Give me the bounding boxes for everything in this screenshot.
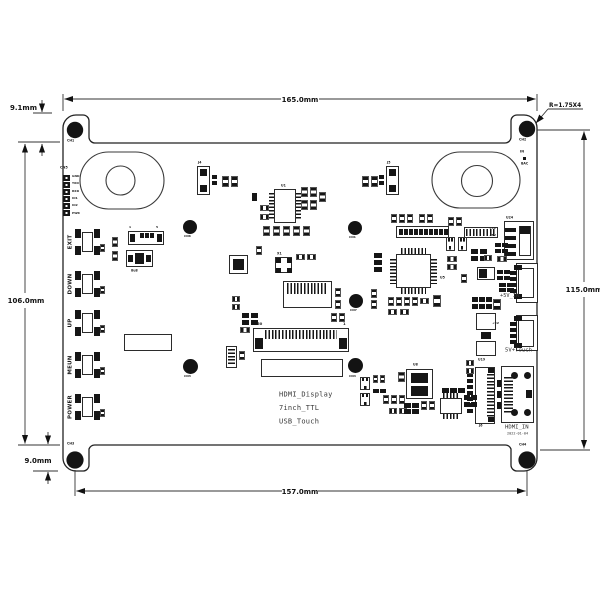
- chip-component: [493, 299, 501, 310]
- smd-pad: [374, 267, 382, 272]
- header-pin-label: RXD: [72, 190, 79, 193]
- chip-component: [307, 254, 316, 260]
- chip-component: [296, 254, 305, 260]
- smd-pad: [471, 249, 478, 254]
- header-pin-label: IO2: [72, 204, 78, 207]
- smd-pad: [146, 255, 151, 262]
- chip-component: [371, 300, 377, 309]
- power-usb-label: +5V_IN: [500, 293, 519, 298]
- chip-component: [100, 409, 105, 417]
- smd-pad: [233, 259, 244, 270]
- smd-pad: [450, 388, 457, 393]
- chip-component: [448, 217, 454, 226]
- smd-pad: [481, 332, 491, 339]
- chip-component: [301, 200, 308, 210]
- smd-pad: [128, 255, 133, 262]
- chip-component: [388, 297, 394, 306]
- smd-pad: [479, 269, 487, 278]
- silkscreen-title: HDMI_Display 7inch_TTL USB_Touch: [279, 388, 333, 429]
- component-outline: [274, 189, 296, 223]
- chip-component: [371, 289, 377, 298]
- smd-pad: [510, 271, 517, 275]
- header-pin-label: TXD: [72, 182, 79, 185]
- chip-component: [427, 214, 433, 223]
- smd-pad: [467, 409, 473, 413]
- ref-label: IN: [520, 150, 524, 153]
- ref-label: U19: [478, 358, 485, 361]
- pin-row: [443, 393, 459, 398]
- via-label: CN7: [350, 309, 357, 312]
- smd-pad: [380, 389, 386, 393]
- smd-pad: [495, 243, 501, 247]
- chip-component: [231, 176, 238, 187]
- chip-component: [260, 214, 269, 220]
- chip-component: [222, 176, 229, 187]
- smd-pad: [200, 169, 207, 176]
- chip-component: [429, 401, 435, 410]
- chip-component: [404, 297, 410, 306]
- chip-component: [399, 214, 405, 223]
- date-code-label: 2022-01-04: [507, 432, 528, 436]
- smd-pad: [276, 268, 281, 273]
- smd-pad: [212, 181, 217, 185]
- header-pin: [63, 196, 70, 202]
- component-outline: [124, 334, 172, 351]
- smd-pad: [510, 322, 517, 326]
- pin-row: [431, 259, 437, 284]
- smd-pad: [200, 185, 207, 192]
- pin-row: [401, 248, 426, 254]
- smd-pad: [497, 276, 503, 280]
- smd-pad: [252, 193, 257, 201]
- smd-pad: [404, 403, 411, 408]
- smd-pad: [150, 233, 154, 238]
- via-hole: [183, 220, 197, 234]
- smd-pad: [404, 229, 408, 235]
- button-label-up: UP: [67, 308, 73, 338]
- chip-component: [398, 372, 405, 382]
- pin-row: [269, 193, 274, 220]
- header-pin: [63, 210, 70, 216]
- header-pin: [63, 182, 70, 188]
- chip-component: [466, 368, 474, 374]
- chip-component: [421, 401, 427, 410]
- chip-component: [400, 309, 409, 315]
- smd-pad: [520, 226, 530, 234]
- smd-pad: [157, 234, 162, 242]
- chip-component: [319, 192, 326, 202]
- smd-pad: [479, 297, 485, 302]
- ref-label: U1: [281, 184, 286, 187]
- smd-pad: [412, 409, 419, 414]
- smd-pad: [488, 368, 494, 373]
- smd-pad: [374, 260, 382, 265]
- tact-switch: [75, 310, 100, 336]
- smd-pad: [374, 253, 382, 258]
- smd-pad: [399, 229, 403, 235]
- smd-pad: [145, 233, 149, 238]
- pin-row: [390, 259, 396, 284]
- pin-row: [443, 414, 459, 419]
- hole-label: CH3: [67, 442, 74, 445]
- screw-hole: [524, 372, 531, 379]
- smd-pad: [510, 277, 517, 281]
- smd-pad: [255, 338, 263, 349]
- via-hole: [348, 358, 363, 373]
- ref-label: +5V: [492, 322, 499, 325]
- smd-pad: [373, 389, 379, 393]
- smd-pad: [467, 385, 473, 389]
- component-outline: [476, 341, 496, 356]
- chip-component: [380, 375, 385, 383]
- smd-pad: [523, 157, 526, 160]
- tact-switch: [75, 271, 100, 297]
- via-hole: [348, 221, 362, 235]
- chip-component: [335, 288, 341, 297]
- via-label: CN4: [349, 375, 356, 378]
- ref-label: U24: [506, 216, 513, 219]
- silkscreen-title-line3: USB_Touch: [279, 415, 333, 429]
- chip-component: [412, 297, 418, 306]
- smd-pad: [412, 403, 419, 408]
- component-outline: [440, 398, 462, 414]
- chip-component: [484, 255, 492, 261]
- smd-pad: [439, 229, 443, 235]
- tact-switch: [75, 352, 100, 378]
- smd-pad: [499, 288, 506, 292]
- smd-pad: [130, 234, 135, 242]
- chip-component: [240, 327, 250, 333]
- ref-label: +5V: [489, 234, 496, 237]
- pin-row: [265, 330, 337, 339]
- smd-pad: [140, 233, 144, 238]
- chip-component: [388, 309, 397, 315]
- smd-pad: [464, 395, 470, 400]
- via-hole: [183, 359, 198, 374]
- smd-pad: [411, 373, 428, 383]
- ref-label: U8: [413, 363, 418, 366]
- smd-pad: [479, 304, 485, 309]
- chip-component: [303, 226, 310, 236]
- smd-pad: [467, 379, 473, 383]
- smd-pad: [502, 243, 508, 247]
- smd-pad: [510, 283, 517, 287]
- smd-pad: [419, 229, 423, 235]
- chip-component: [335, 300, 341, 309]
- ref-label: J6: [479, 424, 482, 427]
- chip-component: [100, 244, 105, 252]
- smd-pad: [486, 297, 492, 302]
- smd-pad: [339, 338, 347, 349]
- ref-label: 8u8: [131, 269, 138, 272]
- smd-pad: [434, 229, 438, 235]
- chip-component: [362, 176, 369, 187]
- smd-pad: [135, 253, 144, 264]
- ref-label: 5: [156, 226, 158, 229]
- pin-row: [487, 374, 494, 418]
- chip-component: [497, 256, 507, 262]
- smd-pad: [242, 320, 249, 325]
- smd-pad: [510, 328, 517, 332]
- smd-pad: [212, 175, 217, 179]
- button-label-meun: MEUN: [67, 350, 73, 380]
- smd-pad: [497, 270, 503, 274]
- via-label: CN1: [349, 236, 356, 239]
- chip-component: [310, 187, 317, 197]
- smd-pad: [514, 316, 522, 321]
- chip-component: [293, 226, 300, 236]
- screw-hole: [524, 409, 531, 416]
- smd-pad: [444, 229, 448, 235]
- smd-pad: [404, 409, 411, 414]
- ref-label: BAC: [521, 162, 528, 165]
- pin-row: [504, 377, 513, 413]
- chip-component: [273, 226, 280, 236]
- smd-pad: [505, 236, 516, 240]
- component-layer: U1J4J58u8U8U24U19U5X1J6INBAC+5V+5V+5V501…: [0, 0, 600, 600]
- pin-row: [287, 283, 328, 294]
- smd-pad: [389, 185, 396, 192]
- sot23-transistor: [360, 377, 370, 390]
- pin-row: [401, 288, 426, 294]
- chip-component: [232, 296, 240, 302]
- hole-label: CH4: [519, 443, 526, 446]
- chip-component: [420, 298, 429, 304]
- chip-component: [391, 395, 397, 404]
- ref-label: 1: [343, 322, 346, 326]
- smd-pad: [276, 258, 281, 263]
- pin-row: [228, 349, 235, 366]
- pcb-dimension-drawing: 165.0mm 9.1mm 106.0mm 9.0mm 157.0mm: [0, 0, 600, 600]
- ref-label: 1: [129, 226, 131, 229]
- smd-pad: [411, 386, 428, 396]
- silkscreen-title-line2: 7inch_TTL: [279, 402, 333, 416]
- smd-pad: [379, 175, 384, 179]
- header-pin: [63, 175, 70, 181]
- chip-component: [232, 304, 240, 310]
- sot23-transistor: [458, 237, 467, 251]
- chip-component: [263, 226, 270, 236]
- smd-pad: [458, 388, 465, 393]
- tact-switch: [75, 394, 100, 420]
- chip-component: [466, 360, 474, 366]
- smd-pad: [389, 169, 396, 176]
- debug-header-name: CN5: [60, 166, 68, 169]
- chip-component: [407, 214, 413, 223]
- chip-component: [100, 367, 105, 375]
- smd-pad: [287, 258, 292, 263]
- chip-component: [373, 375, 378, 383]
- ref-label: U5: [440, 276, 445, 279]
- chip-component: [419, 214, 425, 223]
- hole-label: CH2: [519, 138, 526, 141]
- silkscreen-title-line1: HDMI_Display: [279, 388, 333, 402]
- chip-component: [100, 325, 105, 333]
- smd-pad: [464, 402, 470, 407]
- button-label-power: POWER: [67, 392, 73, 422]
- chip-component: [260, 205, 269, 211]
- smd-pad: [526, 390, 532, 398]
- header-pin: [63, 189, 70, 195]
- chip-component: [112, 251, 118, 261]
- header-pin-label: GND: [72, 175, 79, 178]
- chip-component: [383, 395, 389, 404]
- smd-pad: [472, 304, 478, 309]
- chip-component: [301, 187, 308, 197]
- chip-component: [331, 313, 337, 322]
- chip-component: [461, 274, 467, 283]
- smd-pad: [251, 313, 258, 318]
- header-pin-label: IO1: [72, 197, 78, 200]
- sot23-transistor: [360, 393, 370, 406]
- header-pin: [63, 203, 70, 209]
- chip-component: [371, 176, 378, 187]
- screw-hole: [511, 372, 518, 379]
- chip-component: [456, 217, 462, 226]
- component-outline: [261, 359, 343, 377]
- smd-pad: [471, 395, 477, 400]
- smd-pad: [499, 283, 506, 287]
- sot23-transistor: [446, 237, 455, 251]
- smd-pad: [488, 417, 494, 422]
- chip-component: [391, 214, 397, 223]
- smd-pad: [442, 388, 449, 393]
- chip-component: [447, 256, 457, 262]
- smd-pad: [409, 229, 413, 235]
- smd-pad: [486, 304, 492, 309]
- via-hole: [349, 294, 363, 308]
- smd-pad: [480, 249, 487, 254]
- chip-component: [100, 286, 105, 294]
- ref-label: 50: [257, 322, 262, 326]
- chip-component: [447, 264, 457, 270]
- hdmi-label: HDMI_IN: [505, 424, 529, 430]
- ref-label: J5: [387, 161, 390, 164]
- ref-label: J4: [198, 161, 201, 164]
- button-label-exit: EXIT: [67, 227, 73, 257]
- chip-component: [396, 297, 402, 306]
- smd-pad: [242, 313, 249, 318]
- smd-pad: [502, 249, 508, 253]
- chip-component: [310, 200, 317, 210]
- chip-component: [256, 246, 262, 255]
- button-label-down: DOWN: [67, 269, 73, 299]
- smd-pad: [505, 228, 516, 232]
- smd-pad: [495, 249, 501, 253]
- smd-pad: [414, 229, 418, 235]
- via-label: CN3: [184, 375, 191, 378]
- smd-pad: [429, 229, 433, 235]
- ref-label: X1: [277, 252, 282, 255]
- chip-component: [283, 226, 290, 236]
- chip-component: [433, 295, 441, 307]
- smd-pad: [471, 402, 477, 407]
- chip-component: [389, 408, 397, 414]
- component-outline: [396, 254, 431, 288]
- smd-pad: [471, 256, 478, 261]
- smd-pad: [379, 181, 384, 185]
- smd-pad: [287, 268, 292, 273]
- ref-label: +5V: [489, 227, 496, 230]
- smd-pad: [510, 334, 517, 338]
- smd-pad: [514, 265, 522, 270]
- header-pin-label: PWR: [72, 212, 80, 215]
- chip-component: [112, 237, 118, 247]
- tact-switch: [75, 229, 100, 255]
- chip-component: [239, 351, 245, 360]
- screw-hole: [511, 409, 518, 416]
- hole-label: CH1: [67, 139, 74, 142]
- smd-pad: [472, 297, 478, 302]
- via-label: CN6: [184, 235, 191, 238]
- smd-pad: [424, 229, 428, 235]
- touch-usb-label: 5V+Touch: [505, 347, 532, 353]
